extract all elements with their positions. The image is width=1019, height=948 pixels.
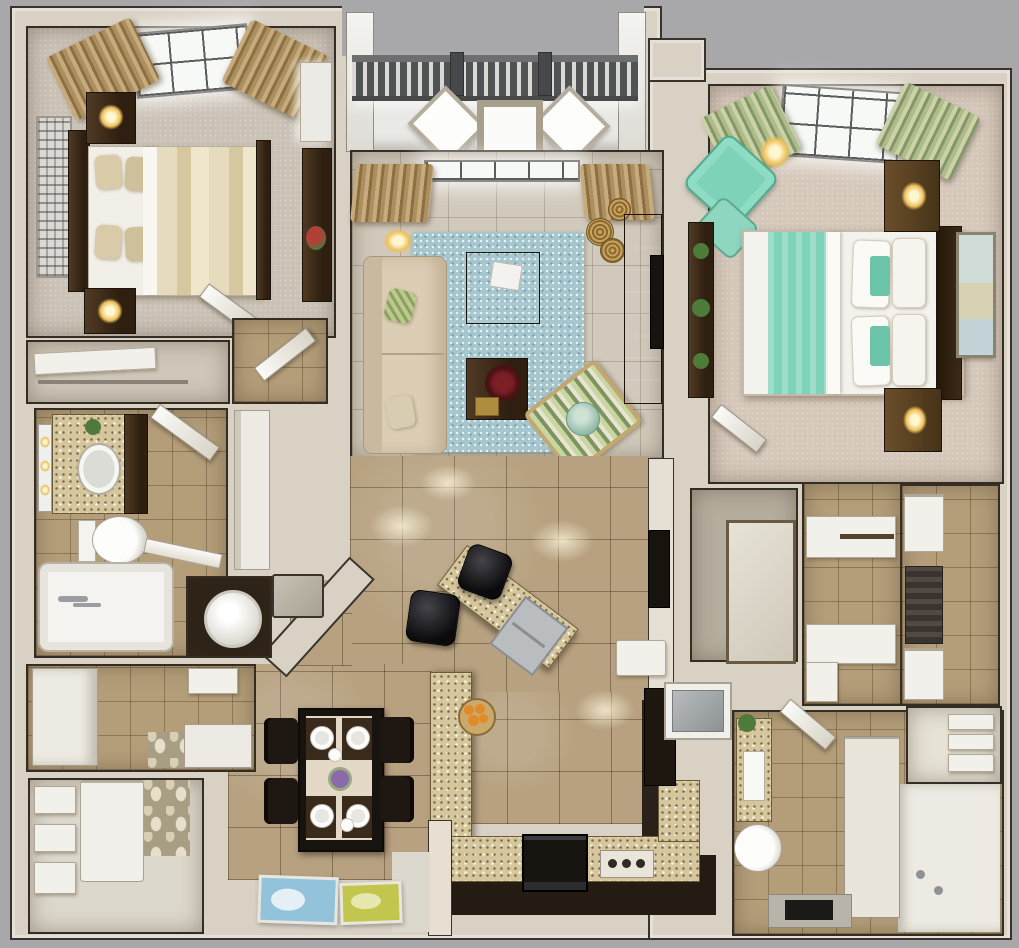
mbath-plant (738, 714, 756, 732)
accent-chair-round-pillow (566, 402, 600, 436)
wicker-basket-2 (600, 238, 625, 263)
floor-glow-2 (530, 520, 594, 562)
bath2-sconce-1 (38, 434, 52, 450)
knob-3 (636, 859, 645, 868)
mbath-toilet (734, 824, 782, 872)
dining-table (298, 708, 384, 852)
bath2-plant (85, 419, 101, 435)
nightstand-lamp-top (94, 100, 128, 134)
mbath-vanity (736, 718, 772, 822)
master-nightstand-top (884, 160, 940, 232)
shelf-plant-1 (693, 243, 709, 259)
fruit-bowl-oranges (458, 698, 496, 736)
bed2-pillow-1 (94, 154, 122, 190)
decor-gold-box (475, 397, 499, 416)
bath2-sconce-3 (38, 482, 52, 498)
knob-1 (608, 859, 617, 868)
bedroom2-dresser (302, 148, 332, 302)
dining-chair-2 (264, 778, 298, 824)
bath2-hall-door-panel (234, 410, 270, 570)
mbath-partition-cabinet (844, 736, 900, 918)
mbath-sink (743, 751, 765, 801)
painting-blue (257, 875, 339, 926)
dining-chair-4 (380, 776, 414, 822)
kitchen-counter-east (658, 780, 700, 842)
bath2-tall-cabinet (124, 414, 148, 514)
closet-mirror-door (726, 520, 796, 664)
right-closet-shelf-stack (904, 494, 944, 552)
walkin-shelf-bottom (806, 624, 896, 664)
plate-1 (310, 726, 334, 750)
tv-flat-panel (650, 255, 664, 349)
floor-glow-5 (575, 690, 635, 730)
linen-shelf-1 (948, 714, 994, 730)
laundry-shelf-2 (34, 824, 76, 852)
sofa-pillow-beige (384, 394, 416, 430)
living-window (424, 160, 580, 182)
washer-top (204, 590, 262, 648)
master-lamp-bottom (899, 401, 931, 439)
bar-stool-2 (405, 589, 462, 647)
master-wall-art-map (956, 232, 996, 358)
orange-2 (475, 704, 485, 714)
flower-centerpiece (331, 770, 349, 788)
master-plant-shelf (688, 222, 714, 398)
hall-floating-shelf (616, 640, 666, 676)
balcony-sky-cutout (342, 0, 644, 56)
laundry-shelf-3 (34, 862, 76, 894)
shelf-plant-2 (692, 299, 710, 317)
master-pillow-3 (892, 238, 926, 308)
apartment-footprint-step (648, 38, 706, 82)
shower-fixture-1 (916, 870, 925, 879)
walkin-rod (840, 534, 894, 539)
room-closet-2 (26, 340, 230, 404)
orange-3 (468, 715, 479, 726)
gray-shelf-unit (272, 574, 324, 618)
teal-accent-pillow-1 (870, 256, 890, 296)
plate-2 (346, 726, 370, 750)
bedroom2-bed (88, 146, 264, 296)
bath-mat-center (785, 900, 833, 920)
refrigerator (664, 682, 732, 740)
orange-4 (479, 714, 488, 723)
nightstand-lamp-bottom (93, 294, 127, 328)
entry-console-left (32, 668, 98, 766)
hanging-clothes (905, 566, 943, 644)
sofa-backrest (364, 257, 382, 453)
teal-accent-pillow-2 (870, 326, 890, 366)
dining-chair-1 (264, 718, 298, 764)
closet2-shelf (34, 347, 157, 375)
bath2-toilet-bowl (92, 516, 148, 564)
floor-glow-1 (370, 505, 434, 547)
entry-console-corner (184, 724, 252, 768)
entry-floating-shelf (188, 668, 238, 694)
painting-yellow (339, 881, 402, 925)
bedroom2-red-plant (306, 226, 326, 250)
coffee-table-lower (466, 358, 528, 420)
closet2-rod (38, 380, 188, 384)
plate-3 (310, 804, 334, 828)
kitchen-west-wall (428, 820, 452, 936)
railing-post-left (450, 52, 464, 96)
tub-faucet (58, 596, 88, 602)
walkin-base-unit (806, 662, 838, 702)
room-laundry (28, 778, 204, 934)
laundry-shelf-1 (34, 786, 76, 814)
painting-blue-motif (271, 888, 306, 911)
master-lamp-top (897, 177, 931, 215)
master-sheet-fold (828, 232, 840, 394)
master-pillow-4 (892, 314, 926, 386)
linen-shelf-3 (948, 754, 994, 772)
orange-1 (464, 705, 474, 715)
side-plate-1 (328, 748, 342, 762)
bedroom2-footboard (256, 140, 271, 300)
sofa-seat-seam (382, 353, 444, 355)
range-oven (522, 834, 588, 892)
room-walkin-right (900, 484, 1000, 706)
linen-shelf-2 (948, 734, 994, 750)
room-walkin-middle (802, 482, 902, 706)
bed2-duvet (157, 147, 257, 295)
magazine (489, 261, 523, 291)
decor-bowl-red (485, 365, 521, 401)
room-entry-hall (26, 664, 256, 772)
dining-chair-3 (380, 717, 414, 763)
balcony-railing (352, 55, 638, 101)
master-nightstand-bottom (884, 388, 942, 452)
room-laundry-closet (186, 576, 272, 658)
floorplan-render (0, 0, 1019, 948)
shelf-plant-3 (693, 353, 709, 369)
right-closet-shelf-low (904, 648, 944, 700)
bedroom2-headboard (68, 130, 90, 292)
painting-yellow-motif (351, 893, 382, 910)
side-plate-2 (340, 818, 354, 832)
knob-2 (622, 859, 631, 868)
bed2-sheet-fold (143, 147, 157, 295)
bar-sink-basin-divider (512, 622, 546, 648)
refrigerator-top (672, 690, 724, 732)
floor-glow-3 (420, 465, 476, 501)
laundry-appliance-stack (80, 780, 144, 882)
bedroom2-wardrobe (300, 62, 332, 142)
master-teal-throw (768, 232, 826, 394)
bath2-tub (38, 562, 174, 652)
cooktop-knob-panel (600, 850, 654, 878)
living-curtain-left (350, 164, 434, 222)
mbath-wet-floor (898, 784, 1000, 932)
master-bed (742, 230, 964, 396)
bath2-sconce-2 (38, 458, 52, 474)
hall-cabinet-dark (648, 530, 670, 608)
shower-fixture-2 (934, 886, 943, 895)
laundry-pebble-inlay (144, 780, 190, 856)
bath2-sink (77, 443, 121, 495)
room-closet-mirror (690, 488, 798, 662)
railing-post-right (538, 52, 552, 96)
room-linen-closet (906, 706, 1002, 784)
bath-mat-frame (768, 894, 852, 928)
bedroom2-wall-art (36, 116, 72, 278)
bed2-pillow-3 (94, 224, 122, 260)
coffee-table-upper (466, 252, 540, 324)
